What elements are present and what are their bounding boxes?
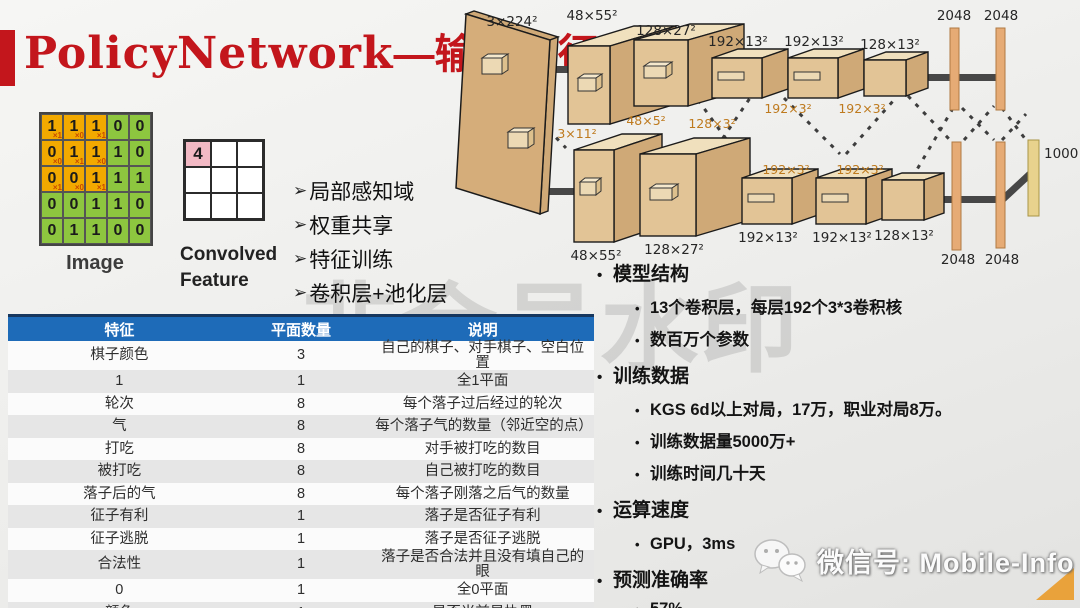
detail-subitem-label: 57% <box>650 600 683 608</box>
image-grid-cell: 1 <box>129 166 151 192</box>
image-grid-cell: 1×1 <box>41 114 63 140</box>
convolved-feature-cell: 4 <box>185 141 211 167</box>
conv-layer-box <box>712 49 788 98</box>
table-cell: 全0平面 <box>371 579 594 602</box>
image-grid-cell: 0 <box>107 114 129 140</box>
conv-layer-box <box>640 138 750 236</box>
convolved-feature-cell <box>211 141 237 167</box>
table-cell: 每个落子刚落之后气的数量 <box>371 483 594 506</box>
feature-table: 特征 平面数量 说明 棋子颜色3自己的棋子、对手棋子、空白位置11全1平面轮次8… <box>8 314 594 608</box>
kernel-label: 192×3² <box>762 162 809 177</box>
bullet-dot-icon: • <box>635 301 650 316</box>
layer-size-label: 192×13² <box>738 230 798 246</box>
kernel-weight-mark: ×1 <box>97 183 106 192</box>
concept-bullet-label: 特征训练 <box>309 244 393 274</box>
table-row: 01全0平面 <box>8 579 594 602</box>
table-cell: 气 <box>8 415 231 438</box>
table-row: 打吃8对手被打吃的数目 <box>8 438 594 461</box>
table-cell: 1 <box>231 505 372 528</box>
bullet-dot-icon: • <box>597 369 613 386</box>
concept-bullet-item: ➢局部感知域 <box>293 174 448 208</box>
wechat-id-label: 微信号: Mobile-Info <box>817 541 1074 580</box>
bullet-dot-icon: • <box>597 267 613 284</box>
image-grid-cell: 1×1 <box>85 166 107 192</box>
table-cell: 自己被打吃的数目 <box>371 460 594 483</box>
table-cell: 颜色 <box>8 602 231 608</box>
table-row: 11全1平面 <box>8 370 594 393</box>
kernel-label: 192×3² <box>838 101 885 116</box>
fc-bar <box>950 28 959 110</box>
image-grid-cell: 0×0 <box>41 140 63 166</box>
table-cell: 1 <box>231 528 372 551</box>
concept-bullet-label: 权重共享 <box>309 210 393 240</box>
table-cell: 落子是否征子逃脱 <box>371 528 594 551</box>
fc-bar <box>996 28 1005 110</box>
table-cell: 1 <box>231 579 372 602</box>
kernel-weight-mark: ×0 <box>75 183 84 192</box>
arrow-bullet-icon: ➢ <box>293 181 307 201</box>
layer-size-label: 192×13² <box>708 34 768 50</box>
table-row: 征子有利1落子是否征子有利 <box>8 505 594 528</box>
input-kernel-patch <box>482 54 508 74</box>
fc-size-label: 2048 <box>937 8 971 24</box>
convolved-feature-cell <box>185 167 211 193</box>
fc-size-label: 2048 <box>985 252 1019 268</box>
table-cell: 8 <box>231 483 372 506</box>
layer-size-label: 48×55² <box>566 8 617 24</box>
detail-subitem-label: 训练时间几十天 <box>650 460 766 484</box>
title-english: PolicyNetwork <box>24 28 393 79</box>
convolved-feature-cell <box>211 193 237 219</box>
table-cell: 每个落子过后经过的轮次 <box>371 393 594 416</box>
detail-bullet-heading: •训练数据 <box>597 361 1080 388</box>
concept-bullet-item: ➢卷积层+池化层 <box>293 276 448 310</box>
concept-bullet-item: ➢特征训练 <box>293 242 448 276</box>
table-cell: 落子后的气 <box>8 483 231 506</box>
arrow-bullet-icon: ➢ <box>293 249 307 269</box>
convolved-feature-cell <box>185 193 211 219</box>
table-row: 落子后的气8每个落子刚落之后气的数量 <box>8 483 594 506</box>
kernel-weight-mark: ×1 <box>53 131 62 140</box>
conv-layer-box <box>816 169 892 224</box>
table-cell: 征子有利 <box>8 505 231 528</box>
table-cell: 1 <box>8 370 231 393</box>
layer-size-label: 128×13² <box>860 37 920 53</box>
table-cell: 棋子颜色 <box>8 341 231 370</box>
image-grid-cell: 1×1 <box>85 114 107 140</box>
cnn-architecture-diagram: 3×11² 48×5² 128×3² <box>450 2 1080 268</box>
concept-bullet-label: 局部感知域 <box>309 176 414 206</box>
kernel-label: 3×11² <box>557 126 596 141</box>
detail-bullet-subitem: •13个卷积层，每层192个3*3卷积核 <box>635 294 1080 318</box>
table-cell: 每个落子气的数量（邻近空的点） <box>371 415 594 438</box>
kernel-weight-mark: ×0 <box>97 157 106 166</box>
kernel-weight-mark: ×1 <box>97 131 106 140</box>
kernel-weight-mark: ×1 <box>53 183 62 192</box>
table-cell: 8 <box>231 460 372 483</box>
wechat-icon <box>752 538 808 582</box>
image-grid-cell: 1 <box>85 192 107 218</box>
layer-size-label: 128×27² <box>644 242 704 258</box>
layer-size-label: 48×55² <box>570 248 621 264</box>
bullet-dot-icon: • <box>635 602 650 608</box>
kernel-label: 192×3² <box>764 101 811 116</box>
image-grid-cell: 0 <box>41 218 63 244</box>
fc-size-label: 2048 <box>941 252 975 268</box>
image-grid-cell: 1 <box>107 192 129 218</box>
table-cell: 3 <box>231 341 372 370</box>
layer-size-label: 128×13² <box>874 228 934 244</box>
table-cell: 落子是否征子有利 <box>371 505 594 528</box>
image-grid-cell: 0 <box>107 218 129 244</box>
bullet-dot-icon: • <box>635 403 650 418</box>
image-grid-cell: 1 <box>107 140 129 166</box>
detail-subitem-label: KGS 6d以上对局，17万，职业对局8万。 <box>650 396 952 420</box>
kernel-label: 48×5² <box>626 113 665 128</box>
col-header-feature: 特征 <box>8 316 231 342</box>
cnn-concept-bullets: ➢局部感知域➢权重共享➢特征训练➢卷积层+池化层 <box>293 174 448 310</box>
table-cell: 全1平面 <box>371 370 594 393</box>
output-size-label: 1000 <box>1044 146 1078 162</box>
detail-heading-label: 预测准确率 <box>613 565 708 592</box>
layer-size-label: 192×13² <box>812 230 872 246</box>
kernel-weight-mark: ×1 <box>75 157 84 166</box>
bullet-dot-icon: • <box>635 333 650 348</box>
table-cell: 自己的棋子、对手棋子、空白位置 <box>371 341 594 370</box>
image-grid-cell: 0 <box>41 192 63 218</box>
kernel-weight-mark: ×0 <box>53 157 62 166</box>
output-bar <box>1028 140 1039 216</box>
table-row: 气8每个落子气的数量（邻近空的点） <box>8 415 594 438</box>
table-cell: 是否当前是执黑 <box>371 602 594 608</box>
image-grid-cell: 0×1 <box>41 166 63 192</box>
table-cell: 对手被打吃的数目 <box>371 438 594 461</box>
title-accent-bar <box>0 30 15 86</box>
bullet-dot-icon: • <box>597 573 613 590</box>
detail-bullet-group: •训练数据•KGS 6d以上对局，17万，职业对局8万。•训练数据量5000万+… <box>597 361 1080 484</box>
detail-subitem-label: 数百万个参数 <box>650 326 749 350</box>
table-row: 棋子颜色3自己的棋子、对手棋子、空白位置 <box>8 341 594 370</box>
input-layer-slab <box>456 11 558 214</box>
table-cell: 8 <box>231 393 372 416</box>
convolved-feature-cell <box>237 193 263 219</box>
fc-bar <box>952 142 961 250</box>
detail-subitem-label: 训练数据量5000万+ <box>650 428 795 452</box>
image-grid-cell: 0 <box>129 218 151 244</box>
detail-heading-label: 训练数据 <box>613 361 689 388</box>
kernel-weight-mark: ×0 <box>75 131 84 140</box>
convolved-feature-cell <box>237 167 263 193</box>
bullet-dot-icon: • <box>635 435 650 450</box>
detail-bullet-subitem: •KGS 6d以上对局，17万，职业对局8万。 <box>635 396 1080 420</box>
bullet-dot-icon: • <box>635 537 650 552</box>
image-grid-cell: 1 <box>107 166 129 192</box>
table-cell: 0 <box>8 579 231 602</box>
layer-size-label: 128×27² <box>636 23 696 39</box>
table-cell: 打吃 <box>8 438 231 461</box>
image-grid-cell: 1×0 <box>63 114 85 140</box>
detail-bullet-heading: •运算速度 <box>597 495 1080 522</box>
arrow-bullet-icon: ➢ <box>293 283 307 303</box>
image-grid-cell: 0×0 <box>63 166 85 192</box>
table-cell: 1 <box>231 602 372 608</box>
convolved-feature-cell <box>237 141 263 167</box>
image-grid-cell: 0 <box>129 114 151 140</box>
detail-bullet-subitem: •训练数据量5000万+ <box>635 428 1080 452</box>
arrow-bullet-icon: ➢ <box>293 215 307 235</box>
image-grid-cell: 0 <box>63 192 85 218</box>
image-grid-cell: 1×0 <box>85 140 107 166</box>
table-row: 征子逃脱1落子是否征子逃脱 <box>8 528 594 551</box>
table-cell: 8 <box>231 415 372 438</box>
detail-subitem-label: GPU，3ms <box>650 530 735 554</box>
layer-size-label: 3×224² <box>486 14 537 30</box>
table-cell: 征子逃脱 <box>8 528 231 551</box>
image-grid-label: Image <box>39 252 151 275</box>
layer-size-label: 192×13² <box>784 34 844 50</box>
conv-layer-box <box>882 173 944 220</box>
table-cell: 落子是否合法并且没有填自己的眼 <box>371 550 594 579</box>
fc-bar <box>996 142 1005 248</box>
wechat-watermark: 微信号: Mobile-Info <box>752 538 1074 582</box>
detail-heading-label: 运算速度 <box>613 495 689 522</box>
image-grid-cell: 1 <box>85 218 107 244</box>
kernel-label: 192×3² <box>836 162 883 177</box>
col-header-plane-count: 平面数量 <box>231 316 372 342</box>
conv-layer-box <box>742 169 818 224</box>
bullet-dot-icon: • <box>635 467 650 482</box>
convolved-feature-cell <box>211 167 237 193</box>
image-grid-cell: 1×1 <box>63 140 85 166</box>
image-grid-cell: 0 <box>129 192 151 218</box>
input-kernel-patch <box>508 128 534 148</box>
table-row: 被打吃8自己被打吃的数目 <box>8 460 594 483</box>
kernel-label: 128×3² <box>688 116 735 131</box>
convolved-feature-grid: 4 <box>183 139 265 221</box>
presentation-slide: 非会员水印 PolicyNetwork—输入特征 1×11×01×1000×01… <box>0 0 1080 608</box>
table-row: 颜色1是否当前是执黑 <box>8 602 594 608</box>
detail-bullet-subitem: •训练时间几十天 <box>635 460 1080 484</box>
table-row: 轮次8每个落子过后经过的轮次 <box>8 393 594 416</box>
detail-bullet-subitem: •57% <box>635 600 1080 608</box>
table-cell: 8 <box>231 438 372 461</box>
fc-size-label: 2048 <box>984 8 1018 24</box>
table-row: 合法性1落子是否合法并且没有填自己的眼 <box>8 550 594 579</box>
concept-bullet-item: ➢权重共享 <box>293 208 448 242</box>
detail-bullet-group: •模型结构•13个卷积层，每层192个3*3卷积核•数百万个参数 <box>597 259 1080 350</box>
detail-bullet-subitem: •数百万个参数 <box>635 326 1080 350</box>
convolved-feature-label: Convolved Feature <box>180 242 292 294</box>
concept-bullet-label: 卷积层+池化层 <box>309 278 447 308</box>
table-cell: 1 <box>231 550 372 579</box>
convolution-input-grid: 1×11×01×1000×01×11×0100×10×01×1110011001… <box>39 112 153 246</box>
table-cell: 轮次 <box>8 393 231 416</box>
image-grid-cell: 0 <box>129 140 151 166</box>
table-cell: 合法性 <box>8 550 231 579</box>
conv-layer-box <box>788 49 864 98</box>
detail-subitem-label: 13个卷积层，每层192个3*3卷积核 <box>650 294 902 318</box>
image-grid-cell: 1 <box>63 218 85 244</box>
table-cell: 1 <box>231 370 372 393</box>
bullet-dot-icon: • <box>597 503 613 520</box>
conv-layer-box <box>864 52 928 96</box>
table-cell: 被打吃 <box>8 460 231 483</box>
col-header-description: 说明 <box>371 316 594 342</box>
table-header-row: 特征 平面数量 说明 <box>8 316 594 342</box>
